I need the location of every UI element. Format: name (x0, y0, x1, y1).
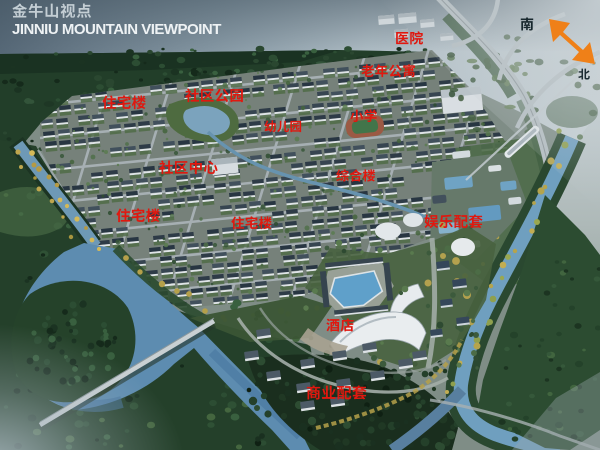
svg-text:JINNIU MOUNTAIN VIEWPOINT: JINNIU MOUNTAIN VIEWPOINT (12, 21, 221, 38)
